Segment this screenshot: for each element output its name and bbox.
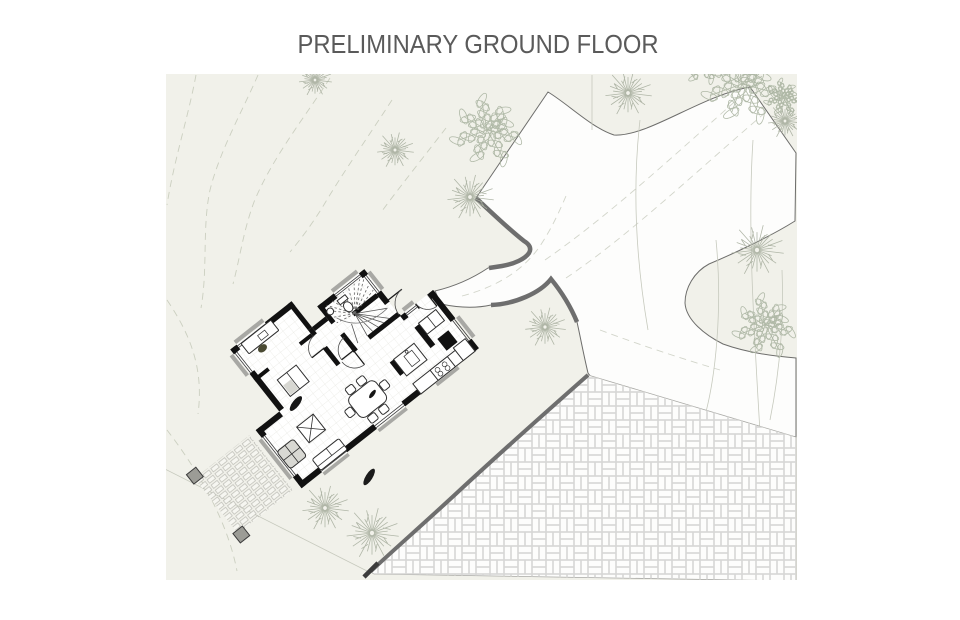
svg-text:PRELIMINARY GROUND FLOOR: PRELIMINARY GROUND FLOOR [298, 29, 659, 59]
